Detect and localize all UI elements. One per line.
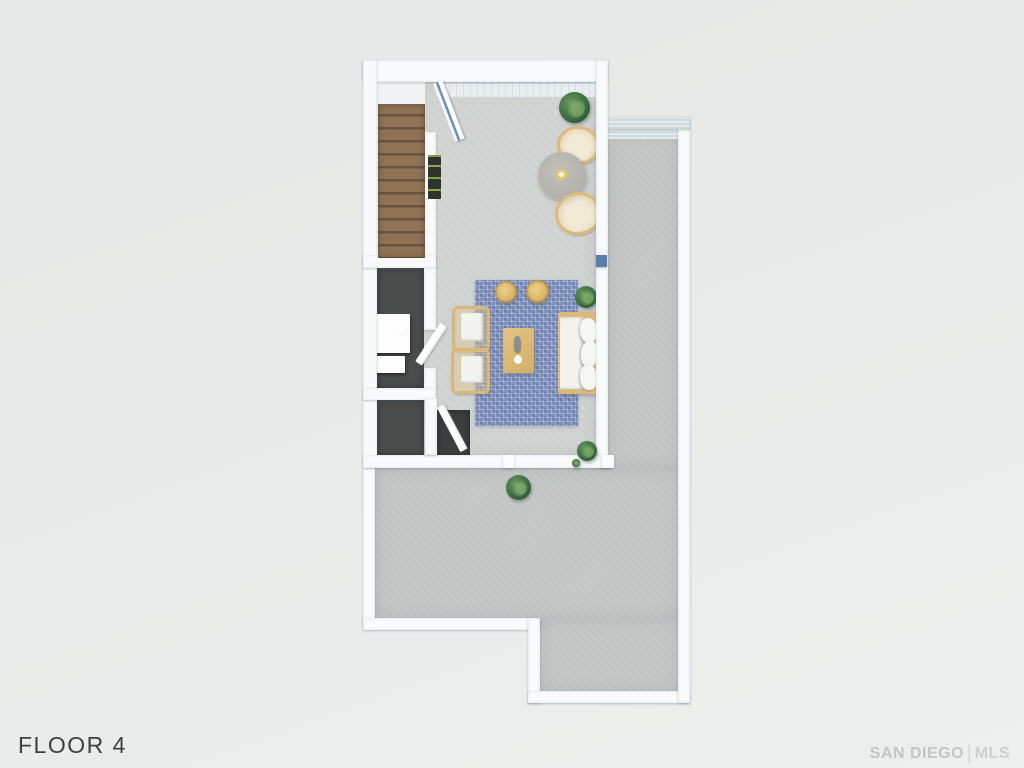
vase-decor xyxy=(514,336,521,352)
deck-top-inner-face xyxy=(608,129,678,139)
deck-door-handle xyxy=(596,250,607,267)
wall-left-deck xyxy=(363,468,375,628)
watermark-mls: MLS xyxy=(975,745,1010,763)
plant-beside-sofa xyxy=(575,286,597,308)
wall-storage-right xyxy=(425,398,437,455)
staircase xyxy=(378,104,425,258)
floor-plan-image: FLOOR 4 SAN DIEGO|MLS xyxy=(0,0,1024,768)
plant-tiny-on-wall xyxy=(572,459,580,467)
watermark-separator: | xyxy=(967,743,972,765)
watermark-city: SAN DIEGO xyxy=(870,745,964,763)
storage-room-floor xyxy=(377,400,424,455)
roof-deck-floor-right xyxy=(608,129,678,468)
wall-deck-top xyxy=(602,117,690,129)
toilet-bowl xyxy=(394,323,407,336)
wall-powder-room-right-lower xyxy=(424,368,436,390)
wall-bottom-deck xyxy=(528,691,690,703)
wall-powder-room-right xyxy=(424,268,436,330)
round-pouf-left xyxy=(495,281,517,303)
armchair-cushion xyxy=(461,356,483,383)
bottom-wall-door-post-left xyxy=(503,455,514,468)
floor-label: FLOOR 4 xyxy=(18,732,127,759)
green-wall-shelf xyxy=(428,155,441,199)
roof-deck-floor-bottom-step xyxy=(540,618,678,691)
wall-stairwell-right xyxy=(425,132,436,267)
wall-right-outer xyxy=(678,117,690,703)
plant-corner-interior xyxy=(577,441,597,461)
mls-watermark: SAN DIEGO|MLS xyxy=(870,745,1010,763)
table-centerpiece xyxy=(556,169,567,180)
white-sofa xyxy=(558,312,599,394)
rattan-armchair-upper xyxy=(452,306,490,352)
bottom-wall-door-post-right xyxy=(602,455,614,468)
rattan-armchair-lower xyxy=(451,348,490,394)
wall-top xyxy=(363,60,608,82)
round-pouf-right xyxy=(526,280,549,303)
plant-on-deck xyxy=(506,475,531,500)
potted-plant-dining xyxy=(559,92,590,123)
wall-notch-horizontal xyxy=(363,618,540,630)
candle-decor xyxy=(514,355,522,364)
armchair-cushion xyxy=(461,313,483,341)
